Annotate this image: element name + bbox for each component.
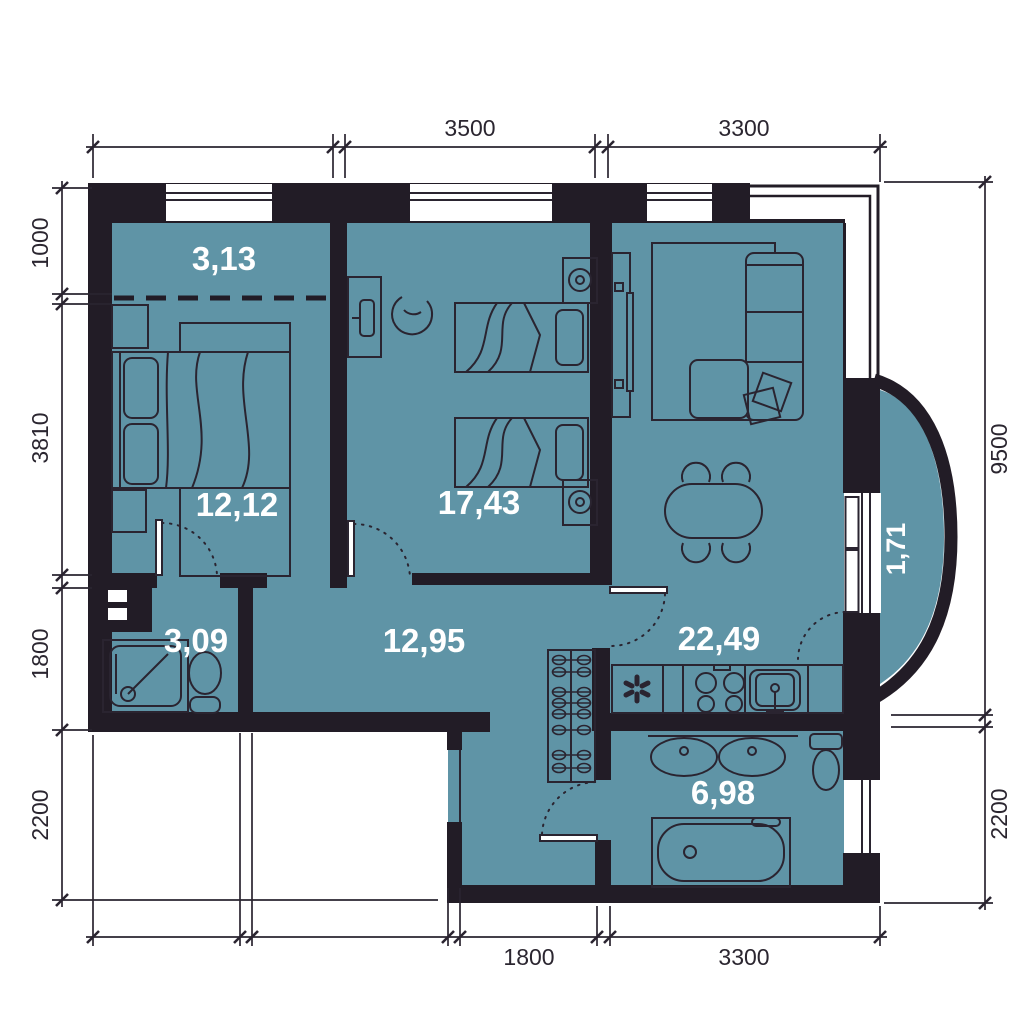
- tv-unit-symbol: [612, 253, 633, 417]
- dim-left-1800: 1800: [27, 628, 53, 679]
- room-area-shower: 3,09: [164, 622, 228, 659]
- room-area-balcony: 1,71: [881, 523, 911, 576]
- dim-left-3810: 3810: [27, 412, 53, 463]
- dim-top-3300: 3300: [718, 115, 769, 141]
- window-bedroom: [166, 184, 272, 221]
- dim-top-3500: 3500: [444, 115, 495, 141]
- dim-right-2200: 2200: [986, 788, 1012, 839]
- room-area-kids: 17,43: [438, 484, 521, 521]
- dim-bottom-3300: 3300: [718, 944, 769, 970]
- room-area-hallway: 12,95: [383, 622, 466, 659]
- floor-plan-drawing: 3,13 12,12 17,43 12,95 3,09 22,49 1,71 6…: [0, 0, 1034, 1034]
- window-kids-room: [410, 184, 552, 221]
- window-bathroom: [844, 780, 881, 853]
- dimension-top: 3500 3300: [86, 115, 887, 182]
- single-bed-symbol: [455, 303, 588, 372]
- dim-right-9500: 9500: [986, 423, 1012, 474]
- room-area-kitchen: 22,49: [678, 620, 761, 657]
- single-bed-symbol: [455, 418, 588, 487]
- double-bed-symbol: [112, 352, 290, 488]
- room-area-bathroom: 6,98: [691, 774, 755, 811]
- dim-left-1000: 1000: [27, 217, 53, 268]
- room-area-bedroom: 12,12: [196, 486, 279, 523]
- room-area-closet: 3,13: [192, 240, 256, 277]
- dim-bottom-1800: 1800: [503, 944, 554, 970]
- floor-plan-page: 3,13 12,12 17,43 12,95 3,09 22,49 1,71 6…: [0, 0, 1034, 1034]
- window-living-room: [647, 184, 712, 221]
- dim-left-2200: 2200: [27, 789, 53, 840]
